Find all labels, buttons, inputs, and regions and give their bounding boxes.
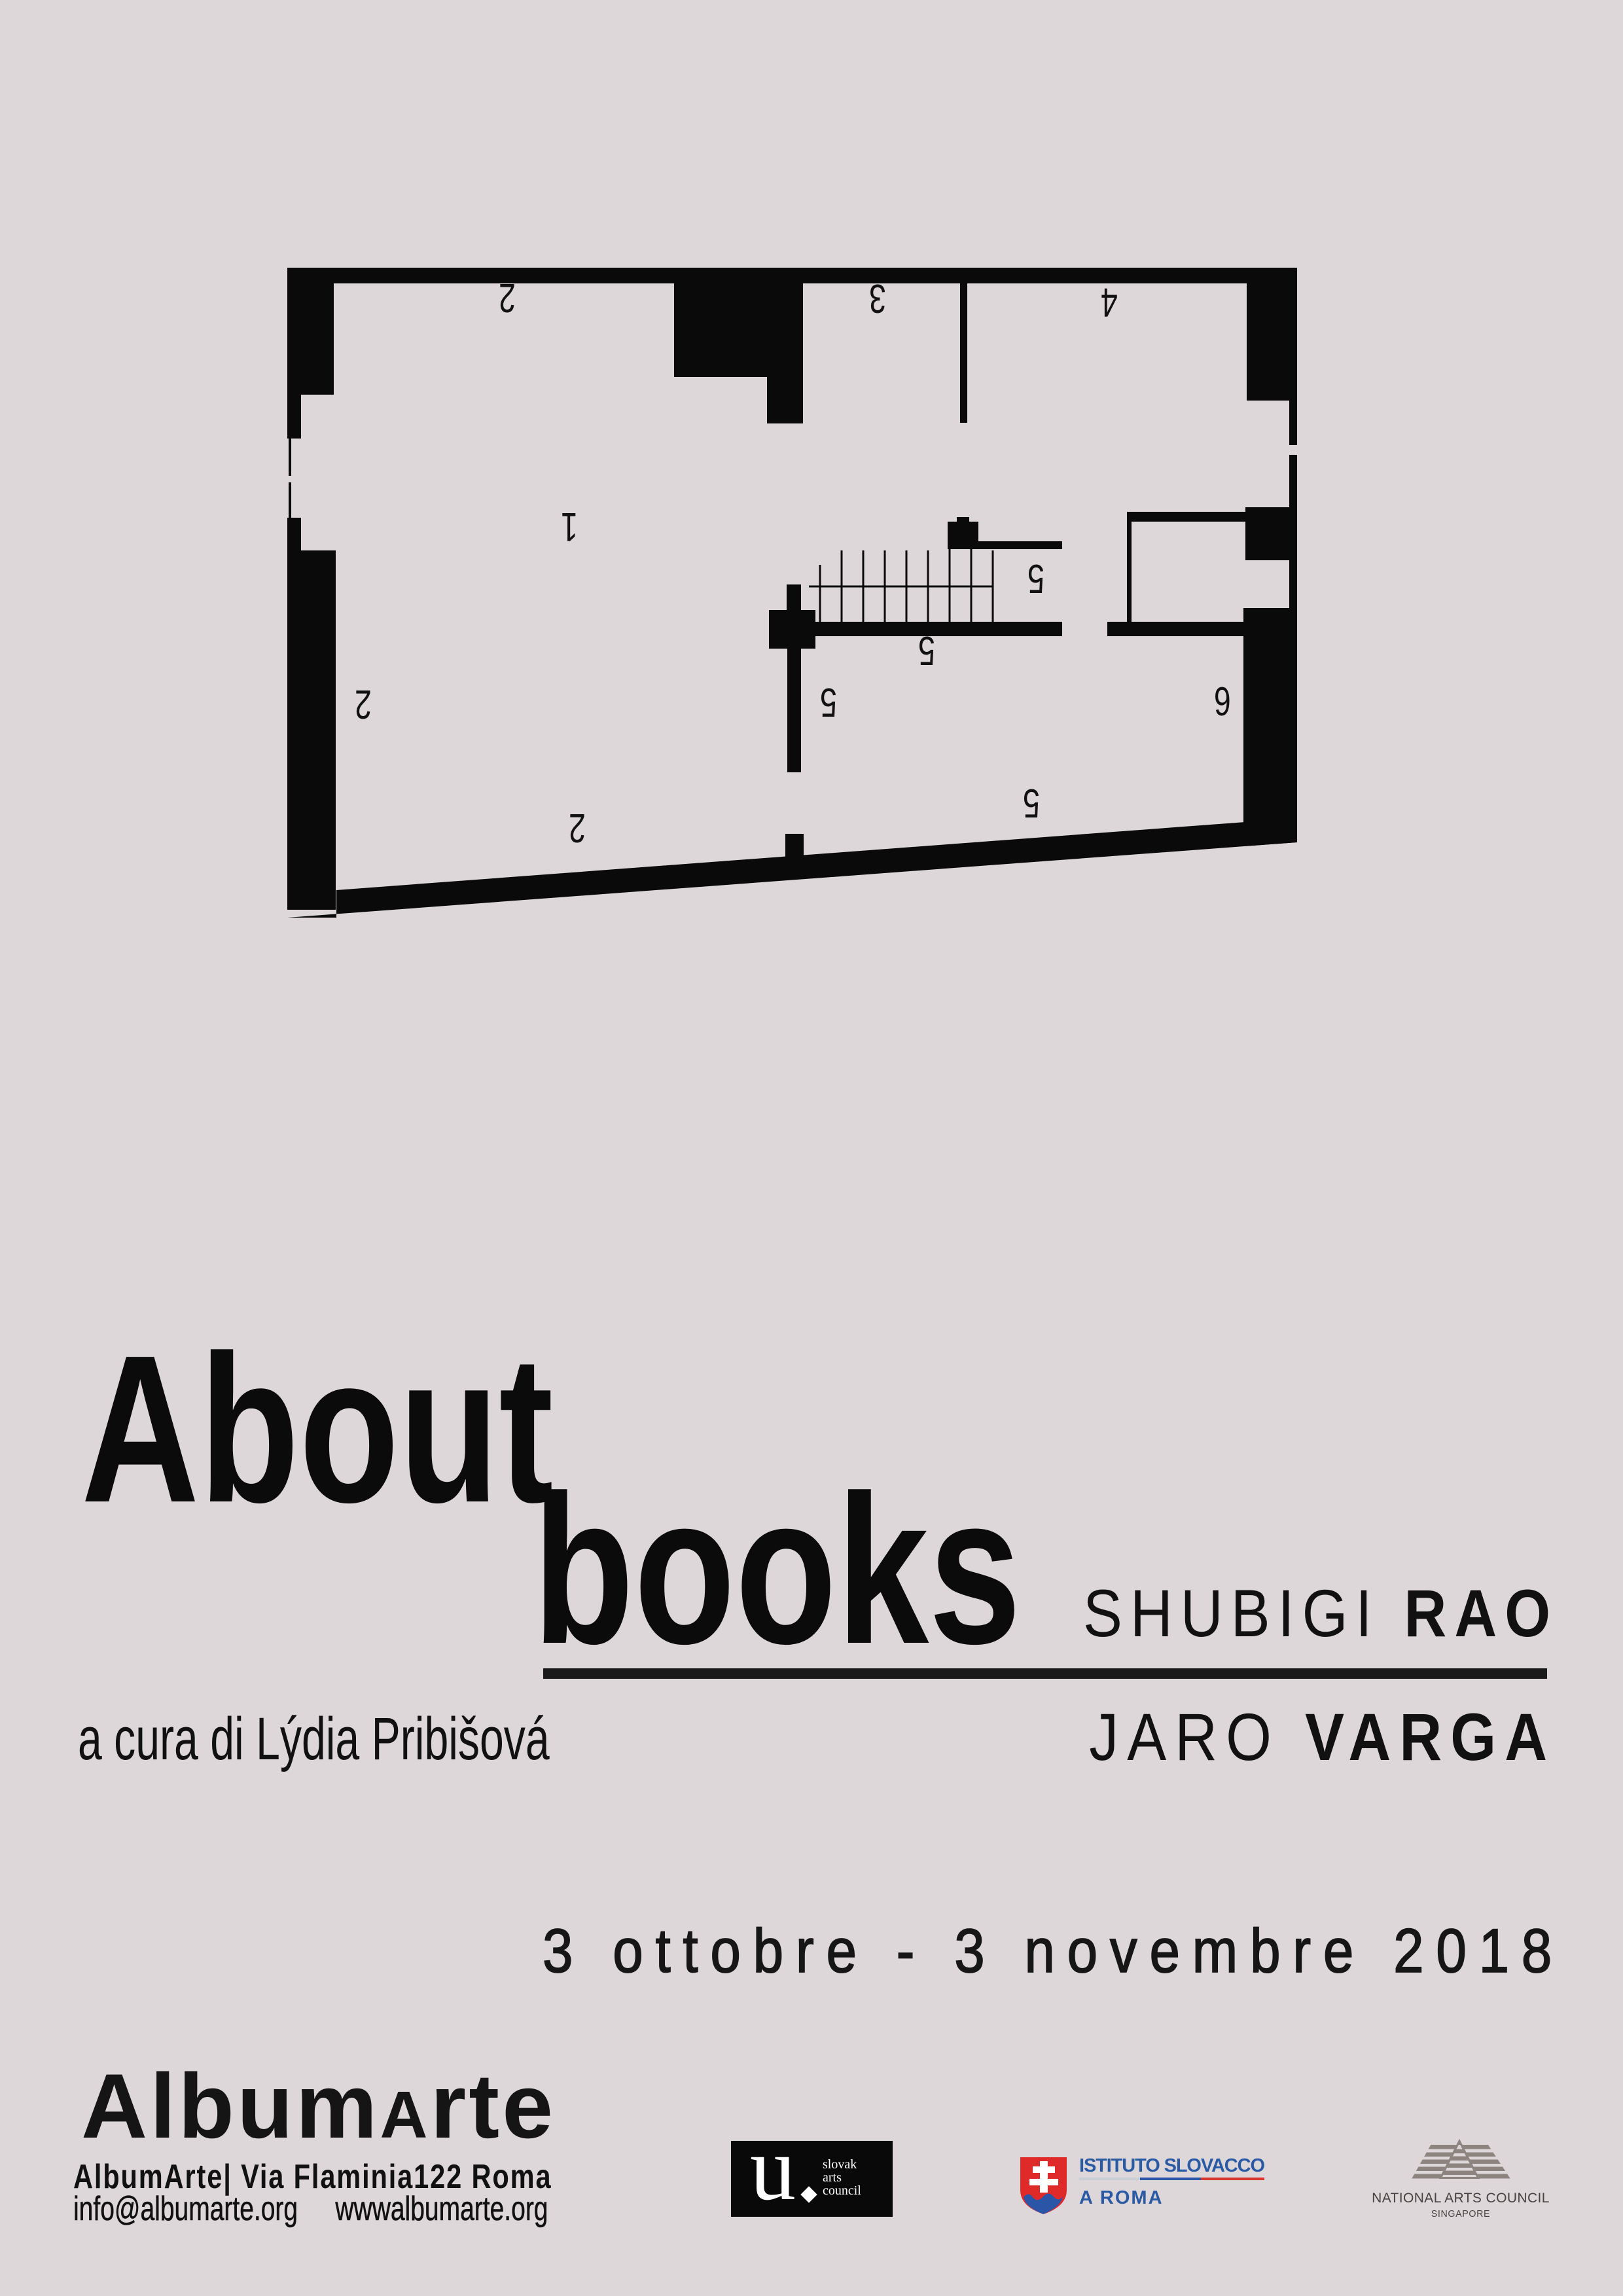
svg-text:NATIONAL ARTS COUNCIL: NATIONAL ARTS COUNCIL <box>1372 2191 1550 2206</box>
svg-text:SINGAPORE: SINGAPORE <box>1431 2209 1490 2219</box>
svg-text:slovak: slovak <box>823 2157 857 2172</box>
svg-text:u: u <box>750 2118 796 2219</box>
svg-text:arts: arts <box>823 2170 842 2185</box>
svg-text:A ROMA: A ROMA <box>1079 2187 1164 2208</box>
svg-text:council: council <box>823 2183 861 2198</box>
svg-text:ISTITUTO SLOVACCO: ISTITUTO SLOVACCO <box>1079 2155 1265 2176</box>
